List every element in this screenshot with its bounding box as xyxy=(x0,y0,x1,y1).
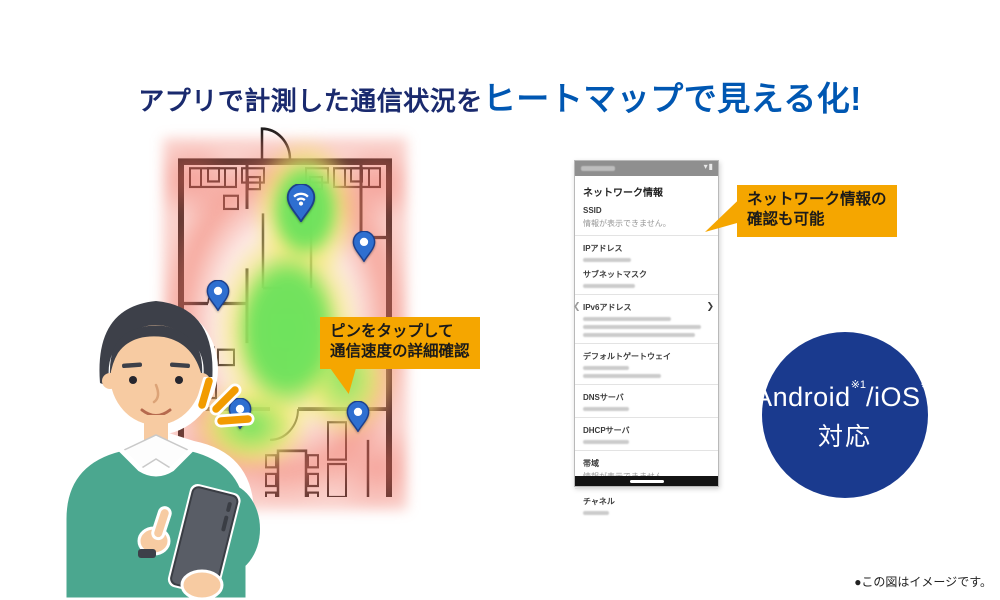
callout-line: ネットワーク情報の xyxy=(747,190,887,210)
callout-line: ピンをタップして xyxy=(330,322,470,342)
person-illustration xyxy=(52,283,264,600)
title-part-navy: アプリで計測した通信状況を xyxy=(138,86,483,116)
phone-row: SSID情報が表示できません。 xyxy=(583,206,710,229)
phone-row: IPアドレス xyxy=(583,243,710,262)
platform-names: Android※1/iOS※2 xyxy=(754,378,936,413)
masked-value xyxy=(583,374,661,378)
phone-row-label: DNSサーバ xyxy=(583,392,710,403)
footnote-mark-1: ※1 xyxy=(851,379,866,391)
masked-value xyxy=(583,258,631,262)
home-indicator xyxy=(630,480,664,483)
masked-value xyxy=(583,284,635,288)
gesture-bar xyxy=(575,476,718,486)
masked-value xyxy=(583,325,701,329)
masked-value xyxy=(583,407,629,411)
callout-network-info: ネットワーク情報の 確認も可能 xyxy=(737,185,897,237)
divider xyxy=(575,450,718,451)
masked-status-text xyxy=(581,166,615,171)
divider xyxy=(575,384,718,385)
title-part-blue: ヒートマップで見える化! xyxy=(483,80,862,117)
divider xyxy=(575,488,718,489)
battery-icon: ▮ xyxy=(709,162,714,171)
hand xyxy=(182,571,222,599)
tap-burst-icon xyxy=(193,377,257,437)
phone-row-label: チャネル xyxy=(583,496,710,507)
phone-row: デフォルトゲートウェイ xyxy=(583,351,710,378)
measurement-pin[interactable] xyxy=(346,401,370,432)
platform-caption: 対応 xyxy=(818,417,872,453)
phone-row-label: SSID xyxy=(583,206,710,215)
divider xyxy=(575,235,718,236)
callout-line: 確認も可能 xyxy=(747,210,887,230)
masked-value xyxy=(583,333,695,337)
phone-row-list: SSID情報が表示できません。IPアドレスサブネットマスクIPv6アドレス❯❮デ… xyxy=(583,206,710,515)
phone-row-label: IPv6アドレス xyxy=(583,302,710,313)
screen-title: ネットワーク情報 xyxy=(583,184,710,199)
masked-value xyxy=(583,511,609,515)
phone-row-label: 帯域 xyxy=(583,458,710,469)
masked-value xyxy=(583,440,629,444)
callout-pin-tap: ピンをタップして 通信速度の詳細確認 xyxy=(320,317,480,369)
phone-row: DHCPサーバ xyxy=(583,425,710,444)
chevron-left-icon: ❮ xyxy=(573,301,581,312)
masked-value xyxy=(583,366,629,370)
divider xyxy=(575,417,718,418)
phone-row: チャネル xyxy=(583,496,710,515)
phone-row-label: デフォルトゲートウェイ xyxy=(583,351,710,362)
door-arc xyxy=(262,129,290,160)
page-title: アプリで計測した通信状況をヒートマップで見える化! xyxy=(0,72,1000,120)
footnote-mark-2: ※2 xyxy=(921,379,936,391)
phone-row: IPv6アドレス❯❮ xyxy=(583,302,710,337)
divider xyxy=(575,294,718,295)
masked-value xyxy=(583,317,671,321)
image-disclaimer: ●この図はイメージです。 xyxy=(854,573,992,590)
phone-row-value: 情報が表示できません。 xyxy=(583,218,710,229)
divider xyxy=(575,343,718,344)
router-pin[interactable] xyxy=(286,184,316,222)
phone-row-label: IPアドレス xyxy=(583,243,710,254)
app-screenshot: ▾▮ ネットワーク情報 SSID情報が表示できません。IPアドレスサブネットマス… xyxy=(574,160,719,487)
watch xyxy=(138,549,156,558)
stage: アプリで計測した通信状況をヒートマップで見える化! xyxy=(0,0,1000,600)
phone-row: DNSサーバ xyxy=(583,392,710,411)
phone-row: サブネットマスク xyxy=(583,269,710,288)
status-bar: ▾▮ xyxy=(575,161,718,176)
platform-badge: Android※1/iOS※2 対応 xyxy=(762,332,928,498)
callout-line: 通信速度の詳細確認 xyxy=(330,342,470,362)
measurement-pin[interactable] xyxy=(352,231,376,262)
phone-row-label: DHCPサーバ xyxy=(583,425,710,436)
phone-row-label: サブネットマスク xyxy=(583,269,710,280)
chevron-right-icon: ❯ xyxy=(706,301,714,312)
